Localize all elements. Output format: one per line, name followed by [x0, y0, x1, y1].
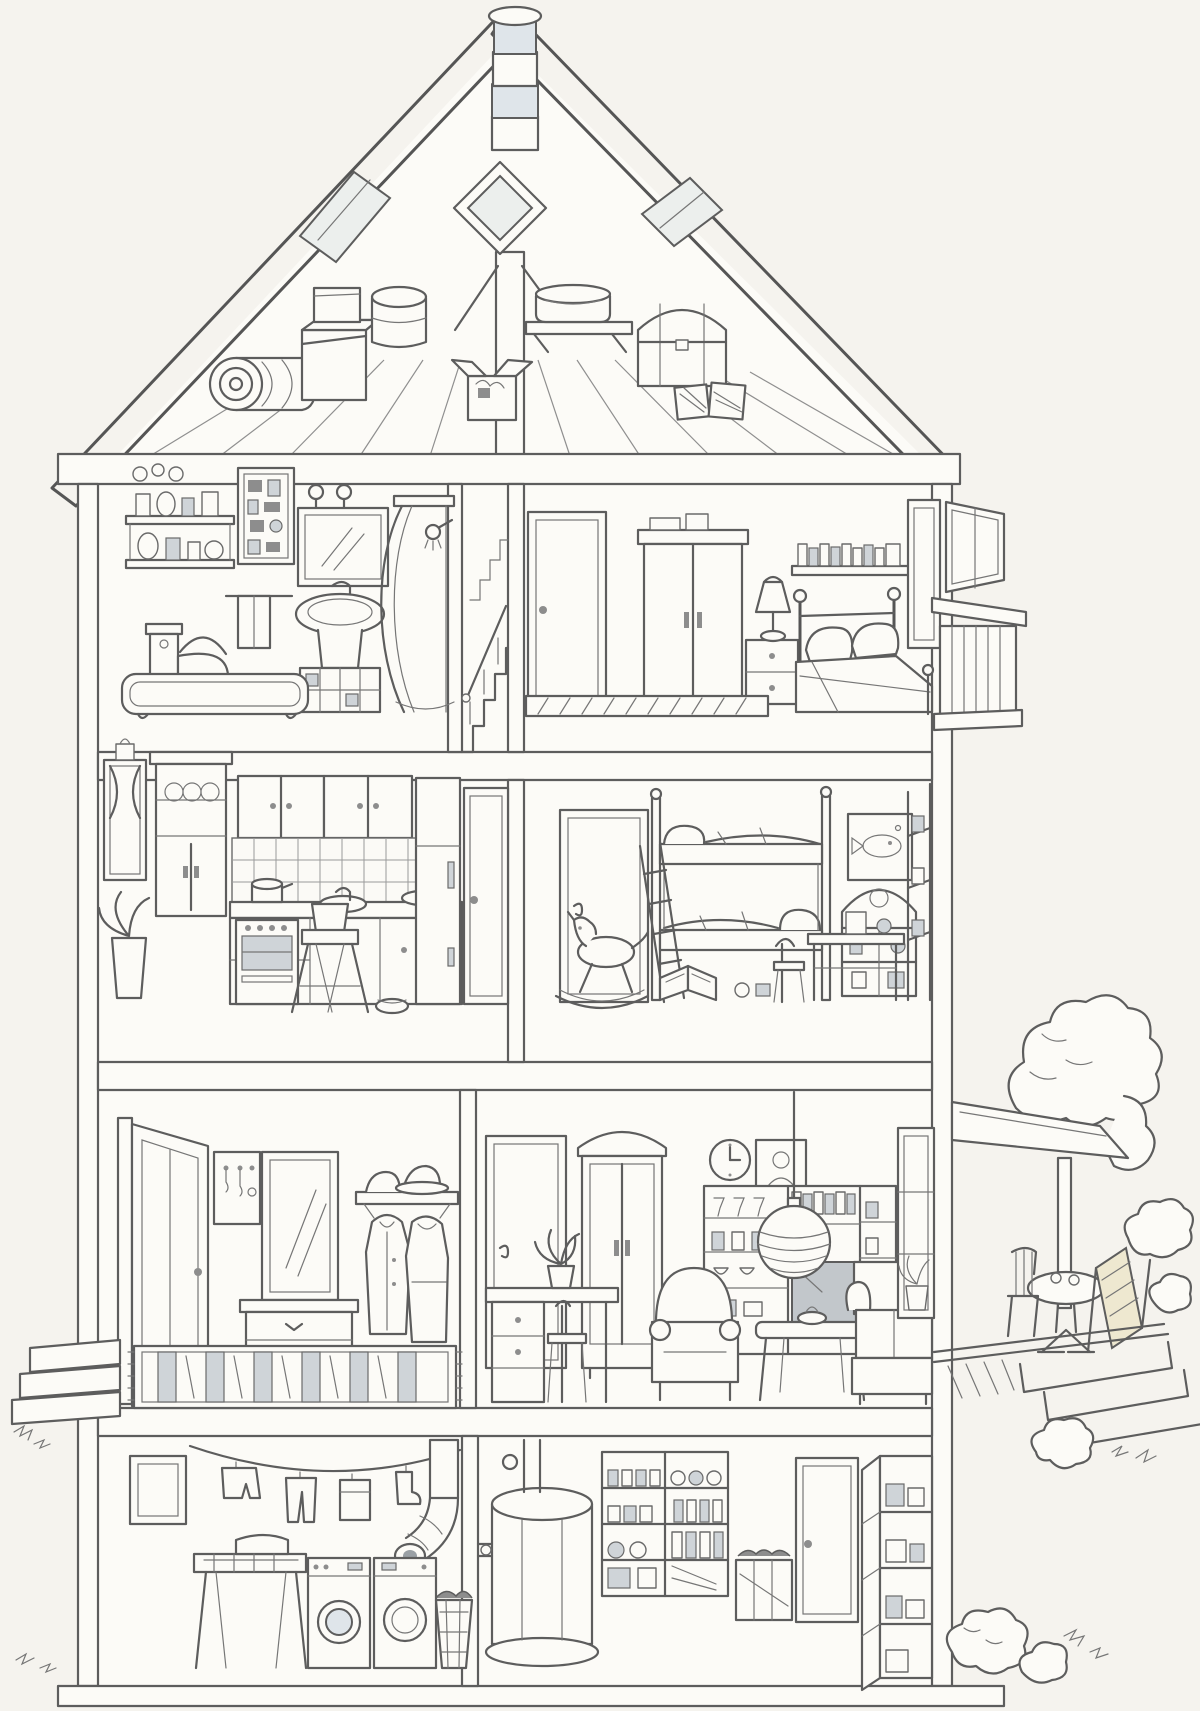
- house-cutaway-drawing: Cutaway dollhouse cross-section illustra…: [0, 0, 1200, 1711]
- key-rack: [214, 1152, 260, 1224]
- armchair: [650, 1268, 740, 1400]
- storage-rack: [862, 1456, 932, 1690]
- hanging-coat-2: [406, 1216, 448, 1342]
- dresser-cupboard: [150, 752, 232, 916]
- bathroom-mirror: [298, 508, 388, 586]
- cellar-window: [130, 1456, 186, 1524]
- left-outer-wall: [78, 484, 98, 1686]
- living-window: [898, 1128, 934, 1318]
- medicine-cabinet: [238, 468, 294, 564]
- divider-floor2: [508, 484, 524, 752]
- divider-floor3: [508, 780, 524, 1062]
- kitchen-window: [104, 739, 146, 880]
- chimney: [489, 7, 541, 150]
- floor-slab-3: [98, 1062, 932, 1090]
- washing-machine: [308, 1558, 370, 1668]
- kitchen-door: [464, 788, 508, 1004]
- pet-bowl: [376, 999, 408, 1013]
- illustration-page: Cutaway dollhouse cross-section illustra…: [0, 0, 1200, 1711]
- runner-rug: [128, 1346, 462, 1408]
- bedroom-rug: [526, 696, 768, 716]
- attic-floor-slab: [58, 454, 960, 484]
- preserve-shelves: [602, 1452, 728, 1596]
- bedroom-door: [528, 512, 606, 706]
- wardrobe: [638, 514, 748, 710]
- towel: [340, 1480, 370, 1520]
- laundry-basket: [436, 1591, 472, 1668]
- cellar-door: [796, 1458, 858, 1622]
- tumble-dryer: [374, 1558, 436, 1668]
- bedroom-book-shelf: [792, 544, 910, 575]
- wooden-crate: [736, 1550, 792, 1620]
- nightstand: [746, 640, 798, 704]
- hall-mirror: [262, 1152, 338, 1300]
- rolled-rug: [210, 358, 316, 410]
- bottom-right-bushes: [947, 1608, 1108, 1682]
- bathtub: [122, 674, 308, 718]
- round-hatbox: [372, 287, 426, 347]
- shirt: [222, 1468, 260, 1498]
- bathroom-stair-wall: [448, 484, 462, 752]
- stove: [236, 920, 298, 1004]
- divider-floor4: [460, 1090, 476, 1408]
- coat-rack: [356, 1166, 458, 1342]
- garden-patio: [934, 995, 1200, 1682]
- fish-picture: [848, 814, 912, 880]
- floor-slab-4: [98, 1408, 932, 1436]
- kids-door: [560, 810, 648, 1002]
- pantry-cupboard: [416, 778, 460, 1004]
- hanging-coat-1: [366, 1215, 410, 1334]
- wall-cabinets: [238, 776, 412, 838]
- wall-clock: [710, 1140, 750, 1180]
